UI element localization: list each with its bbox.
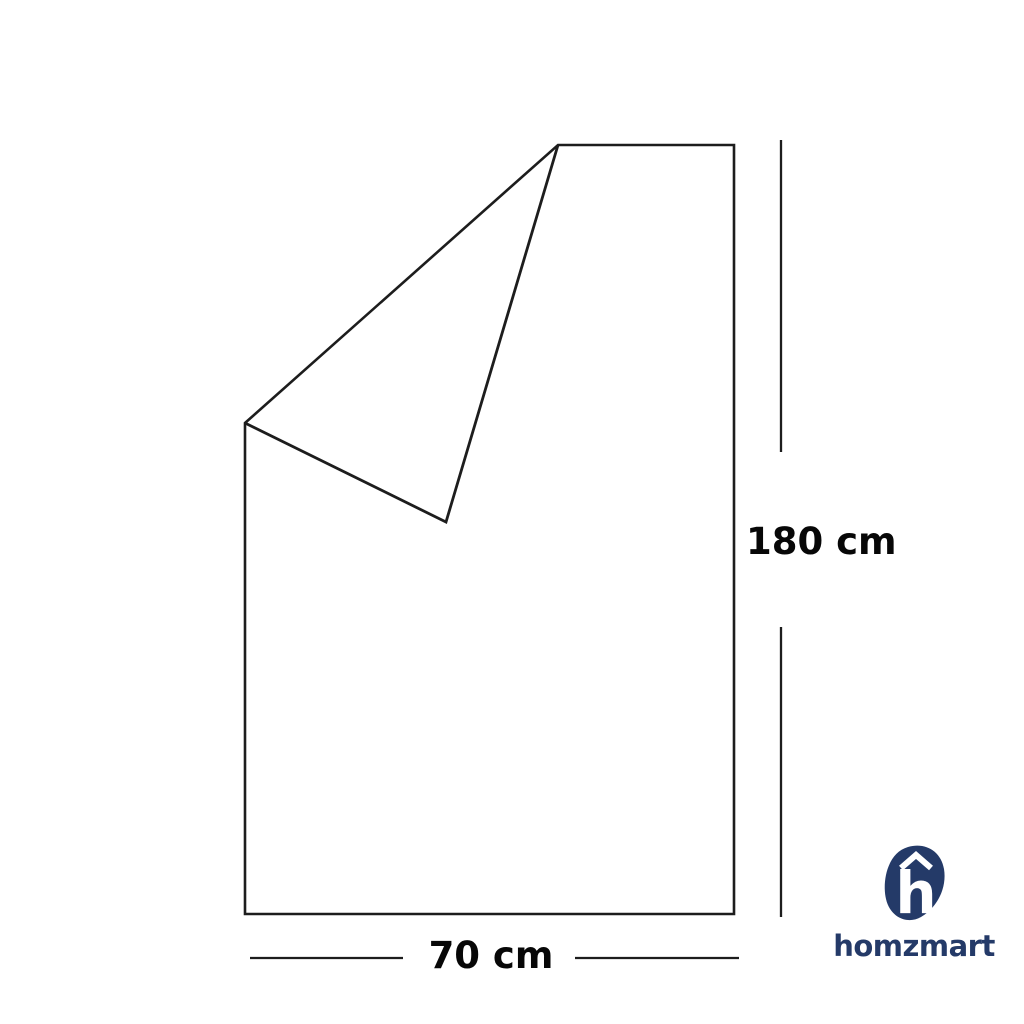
dimension-diagram-page: 180 cm 70 cm h homzmart (0, 0, 1024, 1024)
sheet-fold-flap (245, 145, 558, 522)
height-label: 180 cm (746, 523, 896, 560)
sheet-outline (245, 145, 734, 914)
h-roof-blob-icon: h (878, 841, 950, 925)
diagram-line-group (245, 140, 781, 958)
width-label: 70 cm (416, 937, 566, 974)
homzmart-logo: h homzmart (826, 841, 1002, 961)
homzmart-wordmark: homzmart (826, 932, 1002, 961)
logo-letter: h (895, 859, 936, 925)
